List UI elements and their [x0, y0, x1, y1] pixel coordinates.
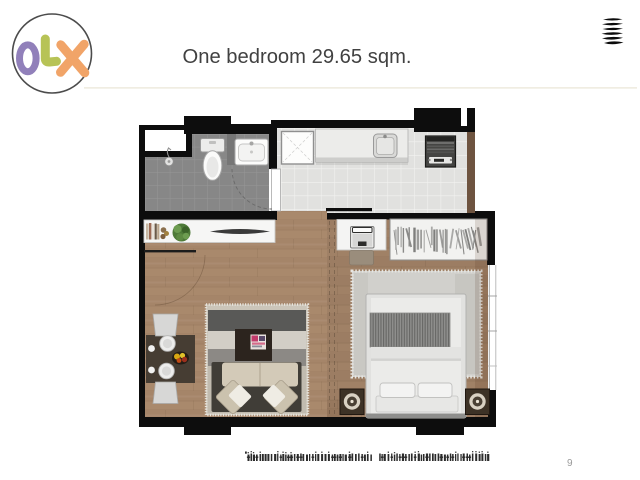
svg-text:One bedroom 29.65 sqm.: One bedroom 29.65 sqm. — [183, 45, 412, 68]
svg-text:9: 9 — [567, 458, 573, 469]
